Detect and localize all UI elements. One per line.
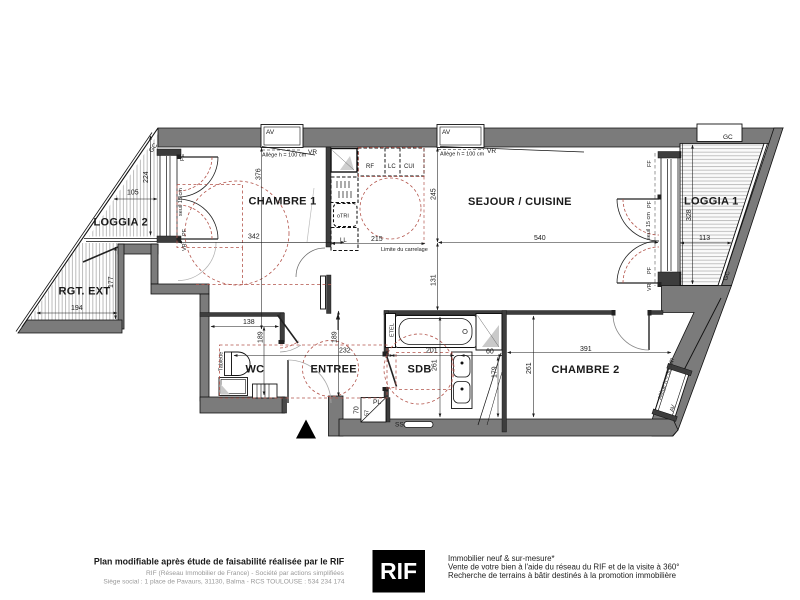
svg-text:CUI: CUI bbox=[404, 164, 415, 170]
svg-text:Siège social : 1 place de Pava: Siège social : 1 place de Pavaurs, 31130… bbox=[103, 579, 345, 586]
svg-text:LC: LC bbox=[388, 164, 396, 170]
svg-text:232: 232 bbox=[339, 348, 351, 355]
svg-text:LL: LL bbox=[340, 238, 347, 244]
svg-text:60: 60 bbox=[486, 349, 494, 356]
svg-text:RIF: RIF bbox=[380, 558, 417, 584]
svg-text:RF: RF bbox=[366, 164, 374, 170]
svg-text:131: 131 bbox=[431, 274, 438, 286]
svg-text:LOGGIA 2: LOGGIA 2 bbox=[94, 217, 149, 229]
svg-text:FF: FF bbox=[647, 160, 653, 167]
svg-text:oTRI: oTRI bbox=[337, 214, 349, 220]
svg-text:PF: PF bbox=[647, 200, 653, 208]
svg-text:177: 177 bbox=[108, 276, 115, 288]
svg-text:seuil 15 cm: seuil 15 cm bbox=[646, 212, 652, 240]
svg-text:RIF (Réseau Immobilier de Fran: RIF (Réseau Immobilier de France) - Soci… bbox=[146, 570, 345, 577]
svg-text:261: 261 bbox=[432, 359, 439, 371]
svg-text:CHAMBRE 2: CHAMBRE 2 bbox=[552, 364, 620, 376]
svg-text:CHAMBRE 1: CHAMBRE 1 bbox=[249, 196, 317, 208]
svg-text:LOGGIA 1: LOGGIA 1 bbox=[684, 196, 739, 208]
svg-text:SS: SS bbox=[395, 422, 404, 429]
svg-text:Limite du carrelage: Limite du carrelage bbox=[381, 247, 428, 253]
svg-text:VR: VR bbox=[487, 148, 496, 155]
svg-text:57: 57 bbox=[365, 410, 371, 416]
svg-text:376: 376 bbox=[256, 168, 263, 180]
svg-text:VR: VR bbox=[647, 283, 653, 291]
svg-text:PE: PE bbox=[180, 153, 186, 161]
svg-text:261: 261 bbox=[526, 362, 533, 374]
svg-text:391: 391 bbox=[580, 346, 592, 353]
svg-text:245: 245 bbox=[431, 188, 438, 200]
svg-text:Plan modifiable après étude de: Plan modifiable après étude de faisabili… bbox=[94, 557, 345, 567]
svg-text:ETEL: ETEL bbox=[390, 323, 396, 337]
svg-text:AV: AV bbox=[266, 129, 275, 136]
svg-text:seuil 15 cm: seuil 15 cm bbox=[178, 188, 184, 216]
svg-text:VR: VR bbox=[182, 243, 188, 251]
svg-text:PF: PF bbox=[182, 228, 188, 236]
svg-text:PF: PF bbox=[647, 266, 653, 274]
svg-text:VR: VR bbox=[308, 149, 317, 156]
svg-text:SEJOUR / CUISINE: SEJOUR / CUISINE bbox=[468, 196, 572, 208]
svg-text:189: 189 bbox=[258, 331, 265, 343]
svg-text:179: 179 bbox=[492, 366, 499, 378]
svg-text:194: 194 bbox=[71, 305, 83, 312]
svg-text:AV: AV bbox=[442, 129, 451, 136]
svg-text:224: 224 bbox=[143, 171, 150, 183]
svg-text:Recherche de terrains à bâtir: Recherche de terrains à bâtir destinés à… bbox=[448, 571, 677, 580]
svg-text:WC: WC bbox=[246, 364, 265, 376]
svg-text:70: 70 bbox=[354, 406, 361, 414]
svg-text:SDB: SDB bbox=[408, 364, 432, 376]
svg-text:540: 540 bbox=[534, 235, 546, 242]
svg-text:ENTREE: ENTREE bbox=[311, 364, 357, 376]
svg-text:GC: GC bbox=[723, 134, 733, 141]
svg-text:328: 328 bbox=[686, 209, 693, 221]
svg-text:201: 201 bbox=[426, 348, 438, 355]
svg-text:113: 113 bbox=[699, 235, 710, 242]
svg-text:105: 105 bbox=[127, 190, 139, 197]
svg-text:215: 215 bbox=[371, 236, 383, 243]
svg-text:Allège h = 100 cm: Allège h = 100 cm bbox=[262, 153, 307, 159]
svg-text:PL: PL bbox=[373, 399, 381, 406]
svg-text:342: 342 bbox=[248, 234, 260, 241]
svg-text:Allège h = 100 cm: Allège h = 100 cm bbox=[440, 152, 485, 158]
svg-text:RGT. EXT: RGT. EXT bbox=[59, 286, 111, 298]
svg-text:189: 189 bbox=[332, 331, 339, 343]
svg-text:138: 138 bbox=[243, 319, 255, 326]
